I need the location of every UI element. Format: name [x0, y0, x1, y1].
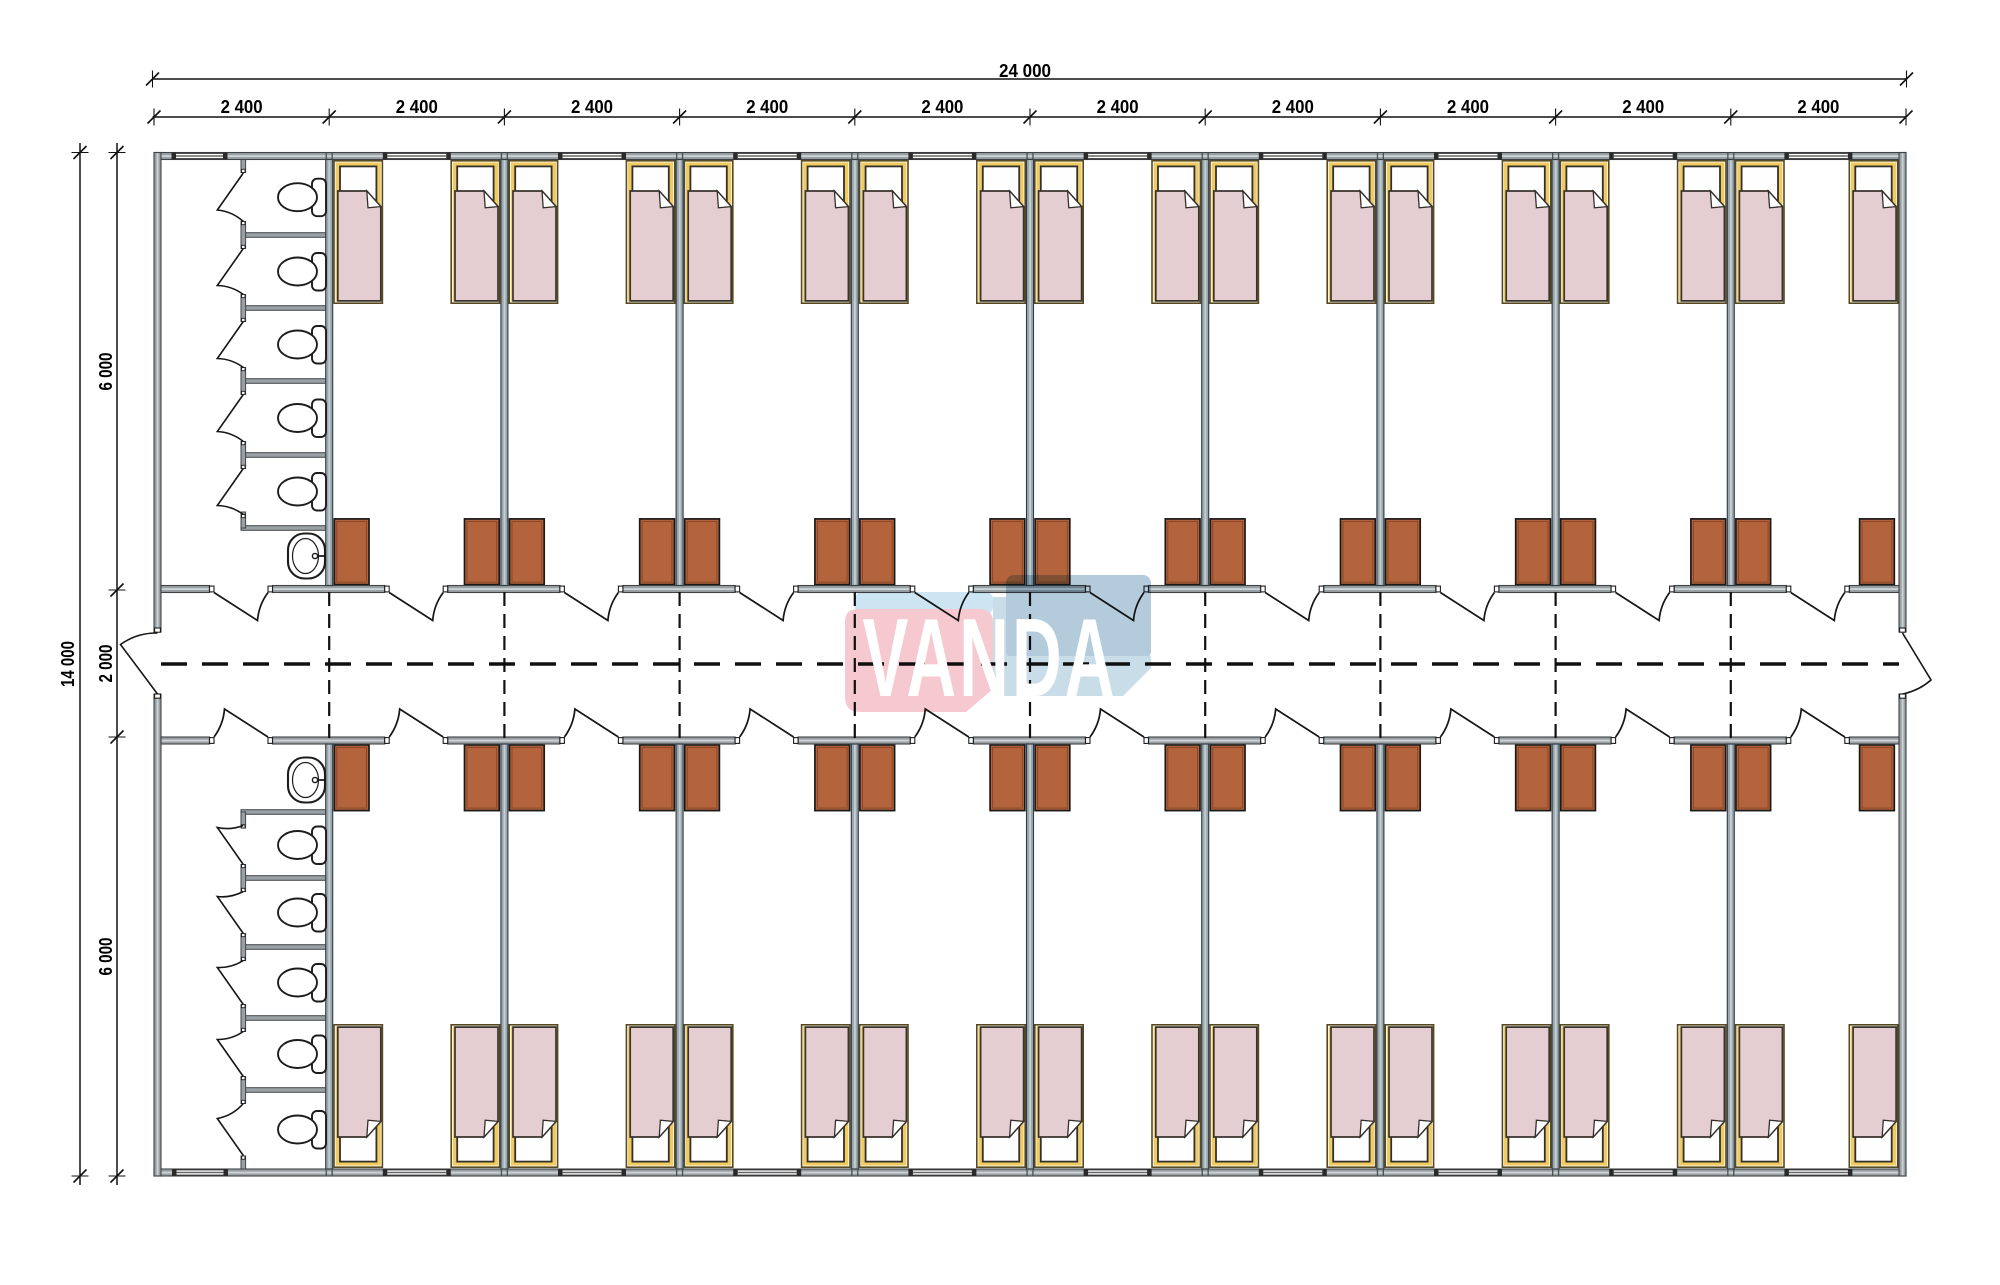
svg-text:2 400: 2 400	[921, 97, 963, 117]
svg-text:14 000: 14 000	[57, 641, 78, 687]
svg-text:2 400: 2 400	[1447, 97, 1489, 117]
svg-text:2 400: 2 400	[1272, 97, 1314, 117]
svg-text:6 000: 6 000	[96, 353, 116, 391]
svg-text:VANDA: VANDA	[862, 595, 1117, 720]
svg-text:2 000: 2 000	[96, 645, 116, 683]
svg-text:6 000: 6 000	[96, 938, 116, 976]
svg-text:2 400: 2 400	[396, 97, 438, 117]
svg-text:2 400: 2 400	[571, 97, 613, 117]
svg-text:2 400: 2 400	[1097, 97, 1139, 117]
svg-text:24 000: 24 000	[999, 60, 1051, 81]
svg-text:2 400: 2 400	[1797, 97, 1839, 117]
svg-text:2 400: 2 400	[746, 97, 788, 117]
svg-text:2 400: 2 400	[221, 97, 263, 117]
svg-text:2 400: 2 400	[1622, 97, 1664, 117]
